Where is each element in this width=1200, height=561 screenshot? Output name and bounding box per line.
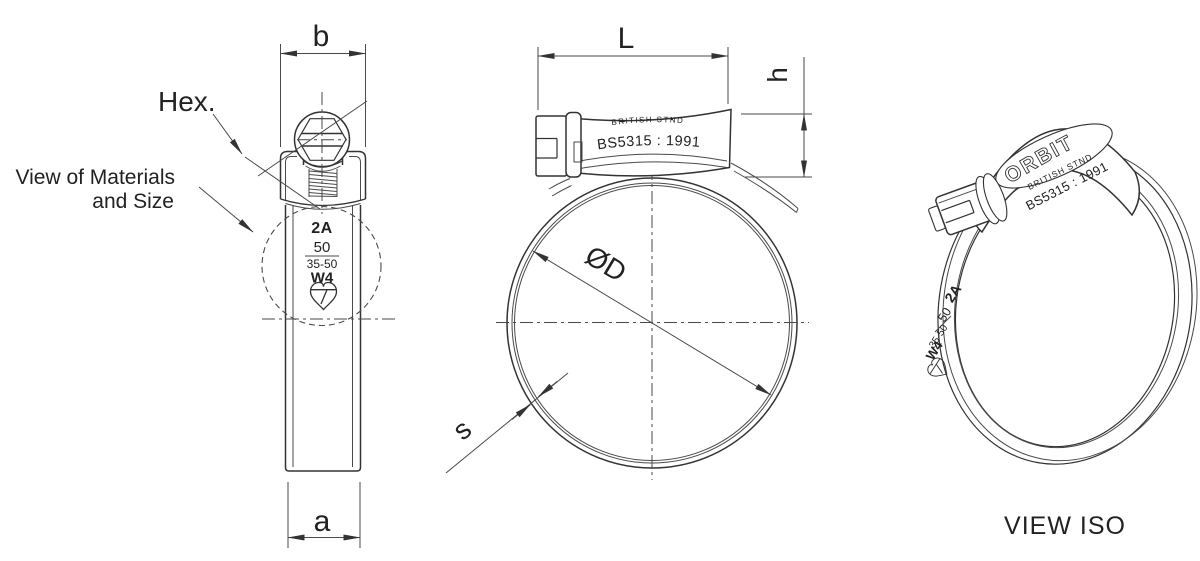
dim-label-a: a [314,505,331,538]
spring-coil [309,169,337,197]
marking-type-code: 2A [311,220,332,237]
iso-view: ORBIT BRITISH STND BS5315 : 1991 2A 50 3… [914,111,1200,540]
screw-head [536,113,582,178]
view-iso-caption: VIEW ISO [1004,512,1126,540]
materials-note: View of Materials and Size [15,166,253,232]
dimension-length: L [538,22,728,110]
hex-label: Hex. [158,86,216,117]
marking-size: 50 [314,239,331,256]
dim-label-b: b [313,20,330,53]
dim-label-L: L [618,22,635,55]
front-view: ØD s ORBIT BRITISH STND BS5315 : 1991 [446,22,812,480]
hose-clamp-technical-drawing: 2A 50 35-50 W4 b a Hex. View of Mate [0,0,1200,561]
band-markings: 2A 50 35-50 W4 [305,220,339,310]
band-end-tail [731,163,798,213]
dimension-height: h [741,57,812,177]
dim-label-h: h [762,67,793,83]
marking-type-code: 2A [941,281,964,305]
band-overlap [549,179,572,197]
drawing-page: 2A 50 35-50 W4 b a Hex. View of Mate [0,0,1200,561]
materials-note-line2: and Size [92,190,174,213]
heart-logo-icon [311,283,337,310]
thickness-label: s [447,413,477,446]
materials-note-line1: View of Materials [15,166,175,189]
band-outline [914,128,1200,484]
dimension-thickness: s [446,373,568,473]
dimension-a: a [288,482,360,548]
diameter-label: ØD [580,240,632,288]
side-view: 2A 50 35-50 W4 b a Hex. View of Mate [15,20,398,548]
